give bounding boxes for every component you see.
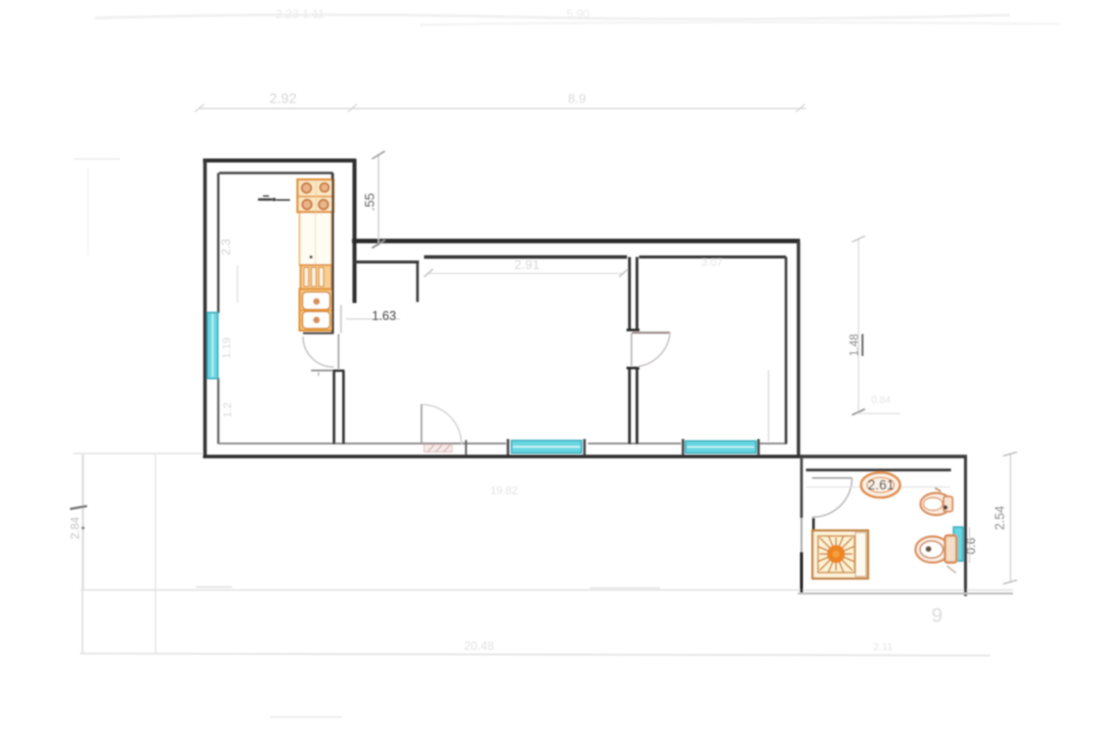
svg-text:2.84: 2.84 [70, 516, 82, 539]
svg-text:5.90: 5.90 [566, 7, 590, 21]
svg-text:2.61: 2.61 [868, 478, 894, 493]
svg-text:1.63: 1.63 [372, 309, 396, 323]
svg-text:2.3: 2.3 [219, 238, 233, 255]
svg-text:1.2: 1.2 [222, 402, 234, 417]
svg-text:19.82: 19.82 [490, 485, 518, 497]
svg-text:8.9: 8.9 [568, 91, 586, 106]
svg-text:1.48: 1.48 [849, 334, 861, 356]
svg-text:.55: .55 [362, 193, 377, 211]
svg-text:0.6: 0.6 [964, 537, 978, 554]
svg-text:2.11: 2.11 [873, 641, 893, 653]
svg-text:9: 9 [931, 605, 942, 627]
svg-text:2.23 1.11: 2.23 1.11 [275, 7, 324, 21]
svg-text:2.91: 2.91 [514, 257, 539, 272]
svg-text:0.84: 0.84 [871, 395, 891, 406]
svg-text:2.54: 2.54 [993, 506, 1007, 530]
svg-text:3.07: 3.07 [701, 257, 722, 269]
svg-text:2.92: 2.92 [269, 90, 296, 106]
svg-text:1.19: 1.19 [221, 337, 233, 358]
svg-text:20.48: 20.48 [464, 639, 494, 653]
